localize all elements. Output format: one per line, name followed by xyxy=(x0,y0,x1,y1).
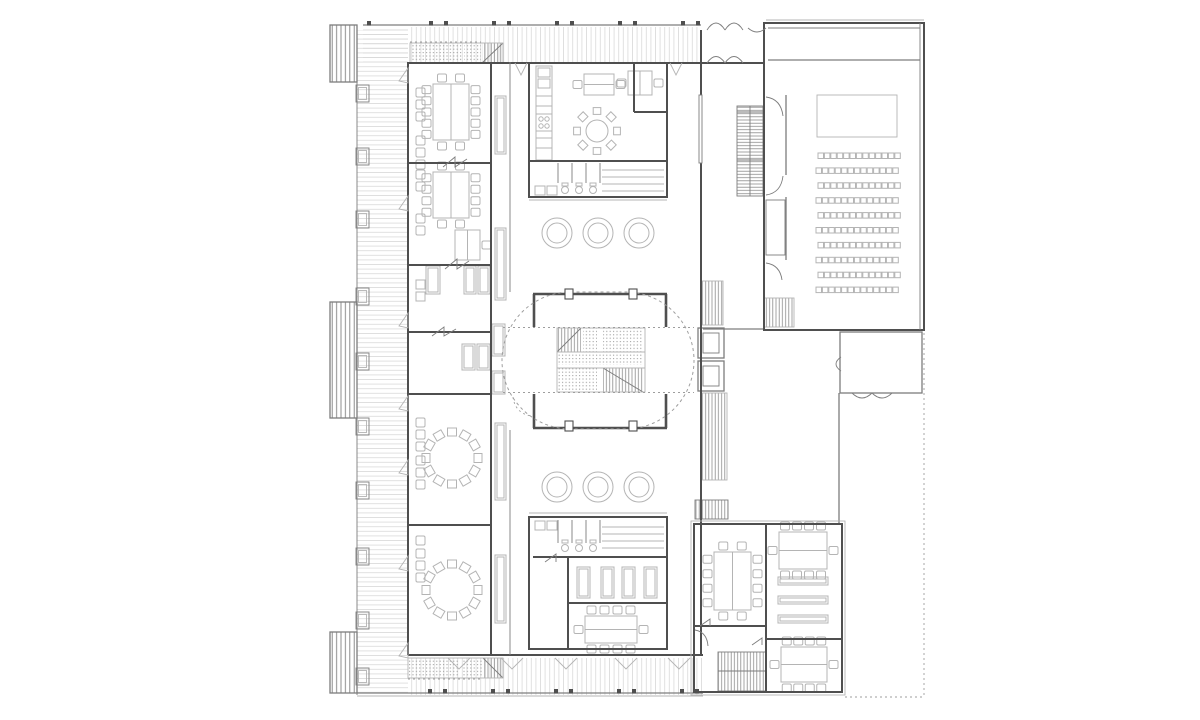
balcony-stairs xyxy=(330,25,357,693)
facade-post-ticks xyxy=(367,21,700,694)
auditorium-side-stair xyxy=(764,298,794,327)
table-group xyxy=(455,230,491,260)
wc-lower xyxy=(535,520,664,552)
table-group xyxy=(422,74,480,150)
lounge-sofas xyxy=(426,266,490,370)
elevator-core xyxy=(698,281,727,480)
table-group xyxy=(770,637,838,692)
wc-upper xyxy=(535,163,664,195)
south-entry-ramp xyxy=(408,658,503,679)
chair-circle xyxy=(422,428,482,488)
table-group xyxy=(617,71,663,95)
side-tables xyxy=(416,280,425,301)
standing-desks xyxy=(577,567,657,598)
table-group xyxy=(768,522,838,579)
kitchen-fittings xyxy=(536,66,552,160)
table-group xyxy=(574,606,648,653)
deck-west xyxy=(357,30,408,695)
canopy-dashed-line xyxy=(845,333,924,697)
auditorium-seats xyxy=(816,153,900,293)
long-tables xyxy=(778,577,828,623)
walls xyxy=(408,20,924,695)
table-group xyxy=(703,542,762,620)
central-staircase xyxy=(557,328,645,392)
corridor-stair-north xyxy=(737,106,763,196)
table-group xyxy=(422,162,480,228)
floor-plan-drawing xyxy=(0,0,1200,720)
corridor-lockers xyxy=(492,96,506,623)
round-table xyxy=(574,108,621,155)
chair-circle xyxy=(422,560,482,620)
north-entry-ramp xyxy=(410,42,503,63)
floor-plan-page xyxy=(0,0,1200,720)
auditorium-stage xyxy=(817,95,897,137)
round-dining-table xyxy=(574,108,621,155)
south-block-stairs xyxy=(695,500,766,691)
